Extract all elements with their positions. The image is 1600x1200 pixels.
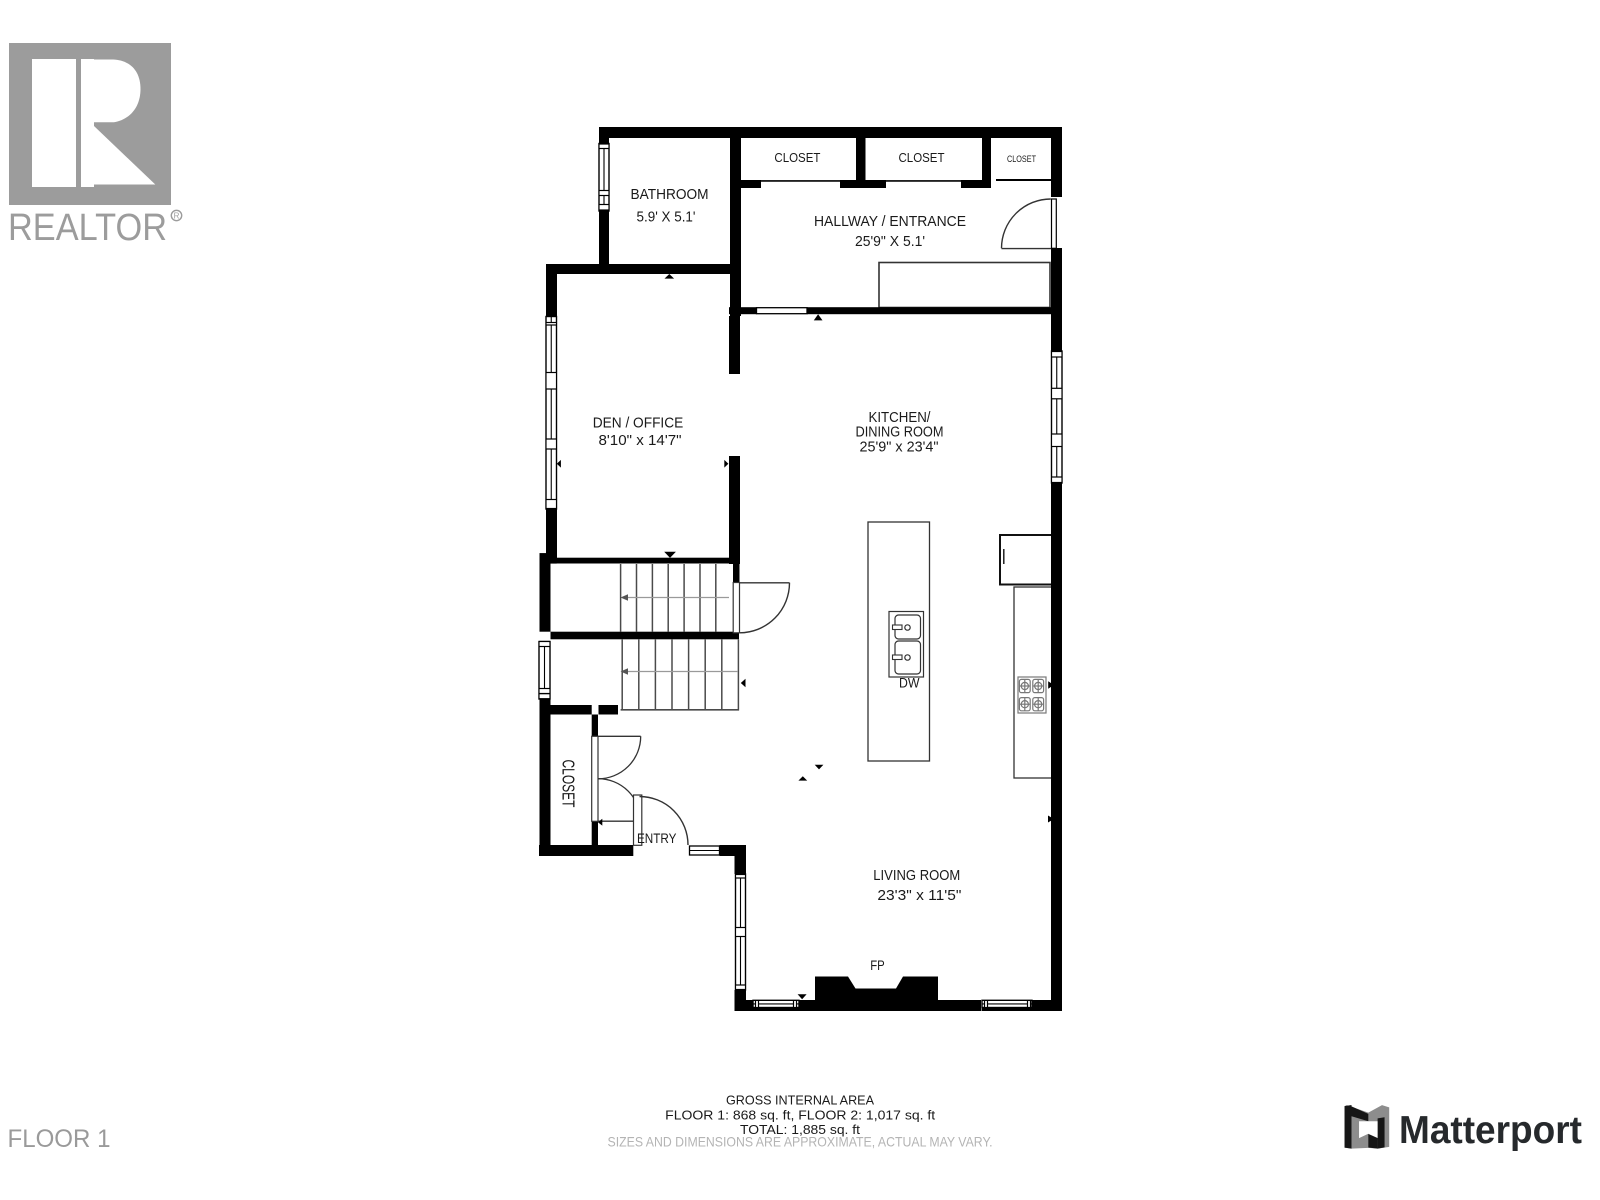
svg-text:GROSS INTERNAL AREA: GROSS INTERNAL AREA xyxy=(726,1093,874,1108)
svg-text:Matterport: Matterport xyxy=(1399,1109,1582,1152)
svg-text:CLOSET: CLOSET xyxy=(774,150,820,165)
svg-text:LIVING ROOM: LIVING ROOM xyxy=(873,867,960,884)
svg-text:SIZES AND DIMENSIONS ARE APPRO: SIZES AND DIMENSIONS ARE APPROXIMATE, AC… xyxy=(608,1134,993,1149)
svg-text:CLOSET: CLOSET xyxy=(899,150,945,165)
svg-text:CLOSET: CLOSET xyxy=(1007,154,1036,165)
svg-text:ENTRY: ENTRY xyxy=(637,830,677,846)
svg-text:23'3" x 11'5": 23'3" x 11'5" xyxy=(877,888,961,904)
svg-text:DW: DW xyxy=(899,674,920,690)
svg-text:BATHROOM: BATHROOM xyxy=(631,186,709,203)
svg-text:25'9" x 23'4": 25'9" x 23'4" xyxy=(860,440,939,456)
svg-text:HALLWAY / ENTRANCE: HALLWAY / ENTRANCE xyxy=(814,213,966,230)
svg-text:5.9' X 5.1': 5.9' X 5.1' xyxy=(637,210,696,226)
svg-text:FP: FP xyxy=(870,958,885,973)
svg-text:CLOSET: CLOSET xyxy=(559,760,579,808)
svg-text:DINING ROOM: DINING ROOM xyxy=(856,424,944,441)
svg-text:REALTOR: REALTOR xyxy=(8,207,167,249)
svg-text:FLOOR 1: FLOOR 1 xyxy=(8,1125,111,1153)
svg-text:8'10" x 14'7": 8'10" x 14'7" xyxy=(599,433,682,449)
svg-text:FLOOR 1: 868 sq. ft, FLOOR 2:: FLOOR 1: 868 sq. ft, FLOOR 2: 1,017 sq. … xyxy=(665,1107,935,1122)
svg-text:25'9" X 5.1': 25'9" X 5.1' xyxy=(855,234,925,250)
svg-text:R: R xyxy=(174,211,180,220)
svg-text:DEN / OFFICE: DEN / OFFICE xyxy=(593,414,684,431)
